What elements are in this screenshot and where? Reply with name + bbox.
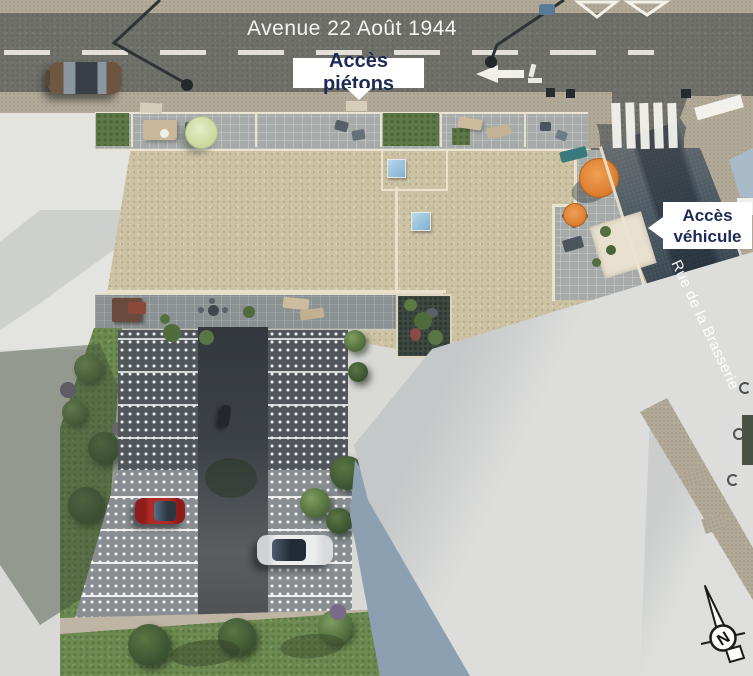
cafe-table	[346, 101, 367, 111]
tree	[326, 508, 352, 534]
terrace-table	[160, 129, 169, 138]
terrace-planter	[96, 113, 129, 146]
car-on-avenue	[46, 58, 124, 98]
compass-north-icon: N	[697, 580, 753, 672]
trash-bin	[546, 88, 555, 97]
terrace-plant	[600, 226, 611, 237]
cafe-table	[140, 102, 162, 113]
bush	[414, 312, 432, 330]
tree	[300, 488, 330, 518]
terrace-divider	[255, 112, 257, 147]
parking-stalls	[118, 330, 198, 470]
terrace-parapet	[552, 204, 555, 301]
umbrella-orange-small	[563, 203, 587, 227]
trash-bin	[566, 89, 575, 98]
terrace-divider	[131, 112, 133, 147]
terrace-divider	[440, 112, 442, 147]
avenue-name-label: Avenue 22 Août 1944	[247, 17, 457, 41]
bush	[428, 330, 443, 345]
skylight	[387, 159, 406, 178]
pedestrian-access-label: Accès piétons	[293, 58, 424, 88]
site-plan-render: Avenue 22 Août 1944 Accès piétons Accès …	[0, 0, 753, 676]
bush	[163, 324, 181, 342]
terrace-plant	[606, 245, 616, 255]
terrace-divider	[380, 112, 382, 147]
terrace-plant	[592, 258, 601, 267]
parked-car-red	[134, 496, 186, 526]
bush	[199, 330, 214, 345]
parked-car-white	[256, 532, 334, 568]
roof-parapet-line	[395, 187, 398, 293]
tree	[128, 624, 170, 666]
terrace-lounge	[128, 302, 146, 314]
vehicle-access-pointer-icon	[648, 217, 663, 239]
terrace-table-set	[196, 298, 230, 322]
street-lamp	[480, 0, 575, 75]
vehicle-access-label: Accès véhicule	[663, 202, 752, 249]
terrace-planter	[383, 113, 439, 146]
tree	[344, 330, 366, 352]
lane-tree-shadow	[205, 458, 257, 498]
trash-bin	[681, 89, 691, 98]
bush-purple	[330, 604, 346, 620]
terrace-plant	[243, 306, 255, 318]
hedge-dark	[742, 415, 753, 465]
terrace-chair	[540, 122, 551, 131]
parked-object-blue	[539, 4, 555, 15]
pedestrian-access-pointer-icon	[346, 88, 372, 100]
tree	[348, 362, 368, 382]
give-way-markings	[570, 0, 680, 20]
parking-stalls	[268, 330, 348, 470]
terrace-planter	[452, 128, 470, 145]
rooftop-terraces-south	[95, 293, 443, 331]
bike-rack-icon	[727, 474, 739, 486]
skylight	[411, 212, 431, 231]
crosswalk	[609, 101, 681, 150]
bike-rack-icon	[733, 428, 745, 440]
courtyard-plant	[404, 299, 417, 311]
umbrella-pale-green	[185, 116, 218, 149]
terrace-divider	[524, 112, 526, 147]
terrace-plant	[160, 314, 170, 324]
courtyard-flowers	[410, 328, 421, 341]
